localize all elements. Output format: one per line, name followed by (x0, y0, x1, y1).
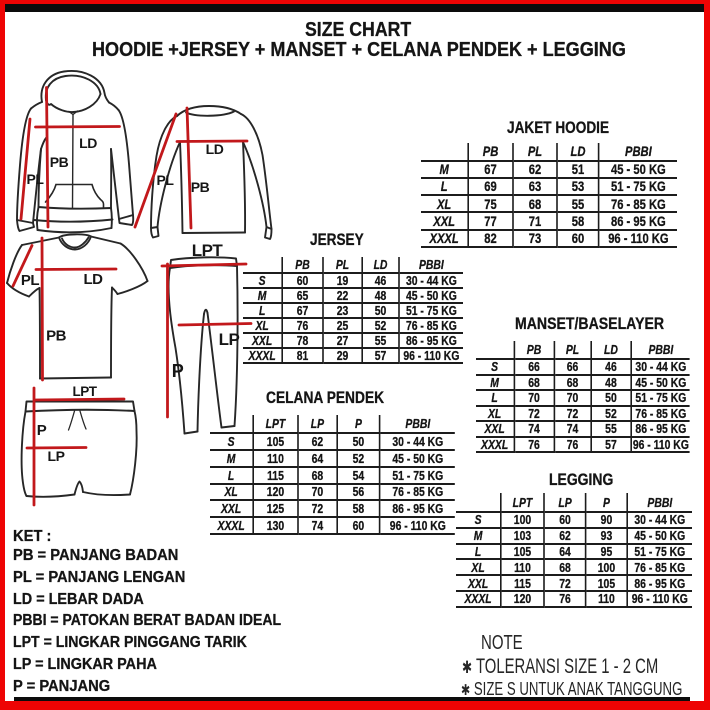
svg-text:LD: LD (79, 135, 97, 151)
svg-text:LPT: LPT (192, 241, 224, 260)
svg-text:LP: LP (48, 448, 65, 464)
svg-text:LD: LD (84, 271, 104, 288)
svg-text:PL: PL (21, 272, 40, 289)
svg-text:PL: PL (27, 171, 45, 187)
svg-text:P: P (37, 422, 47, 439)
svg-text:P: P (172, 361, 184, 381)
svg-text:LD: LD (206, 141, 224, 157)
svg-text:PL: PL (157, 172, 175, 188)
svg-text:PB: PB (191, 179, 210, 195)
svg-text:PB: PB (50, 154, 69, 170)
svg-text:LPT: LPT (73, 384, 98, 399)
svg-text:LP: LP (219, 330, 240, 349)
svg-text:PB: PB (46, 328, 67, 345)
